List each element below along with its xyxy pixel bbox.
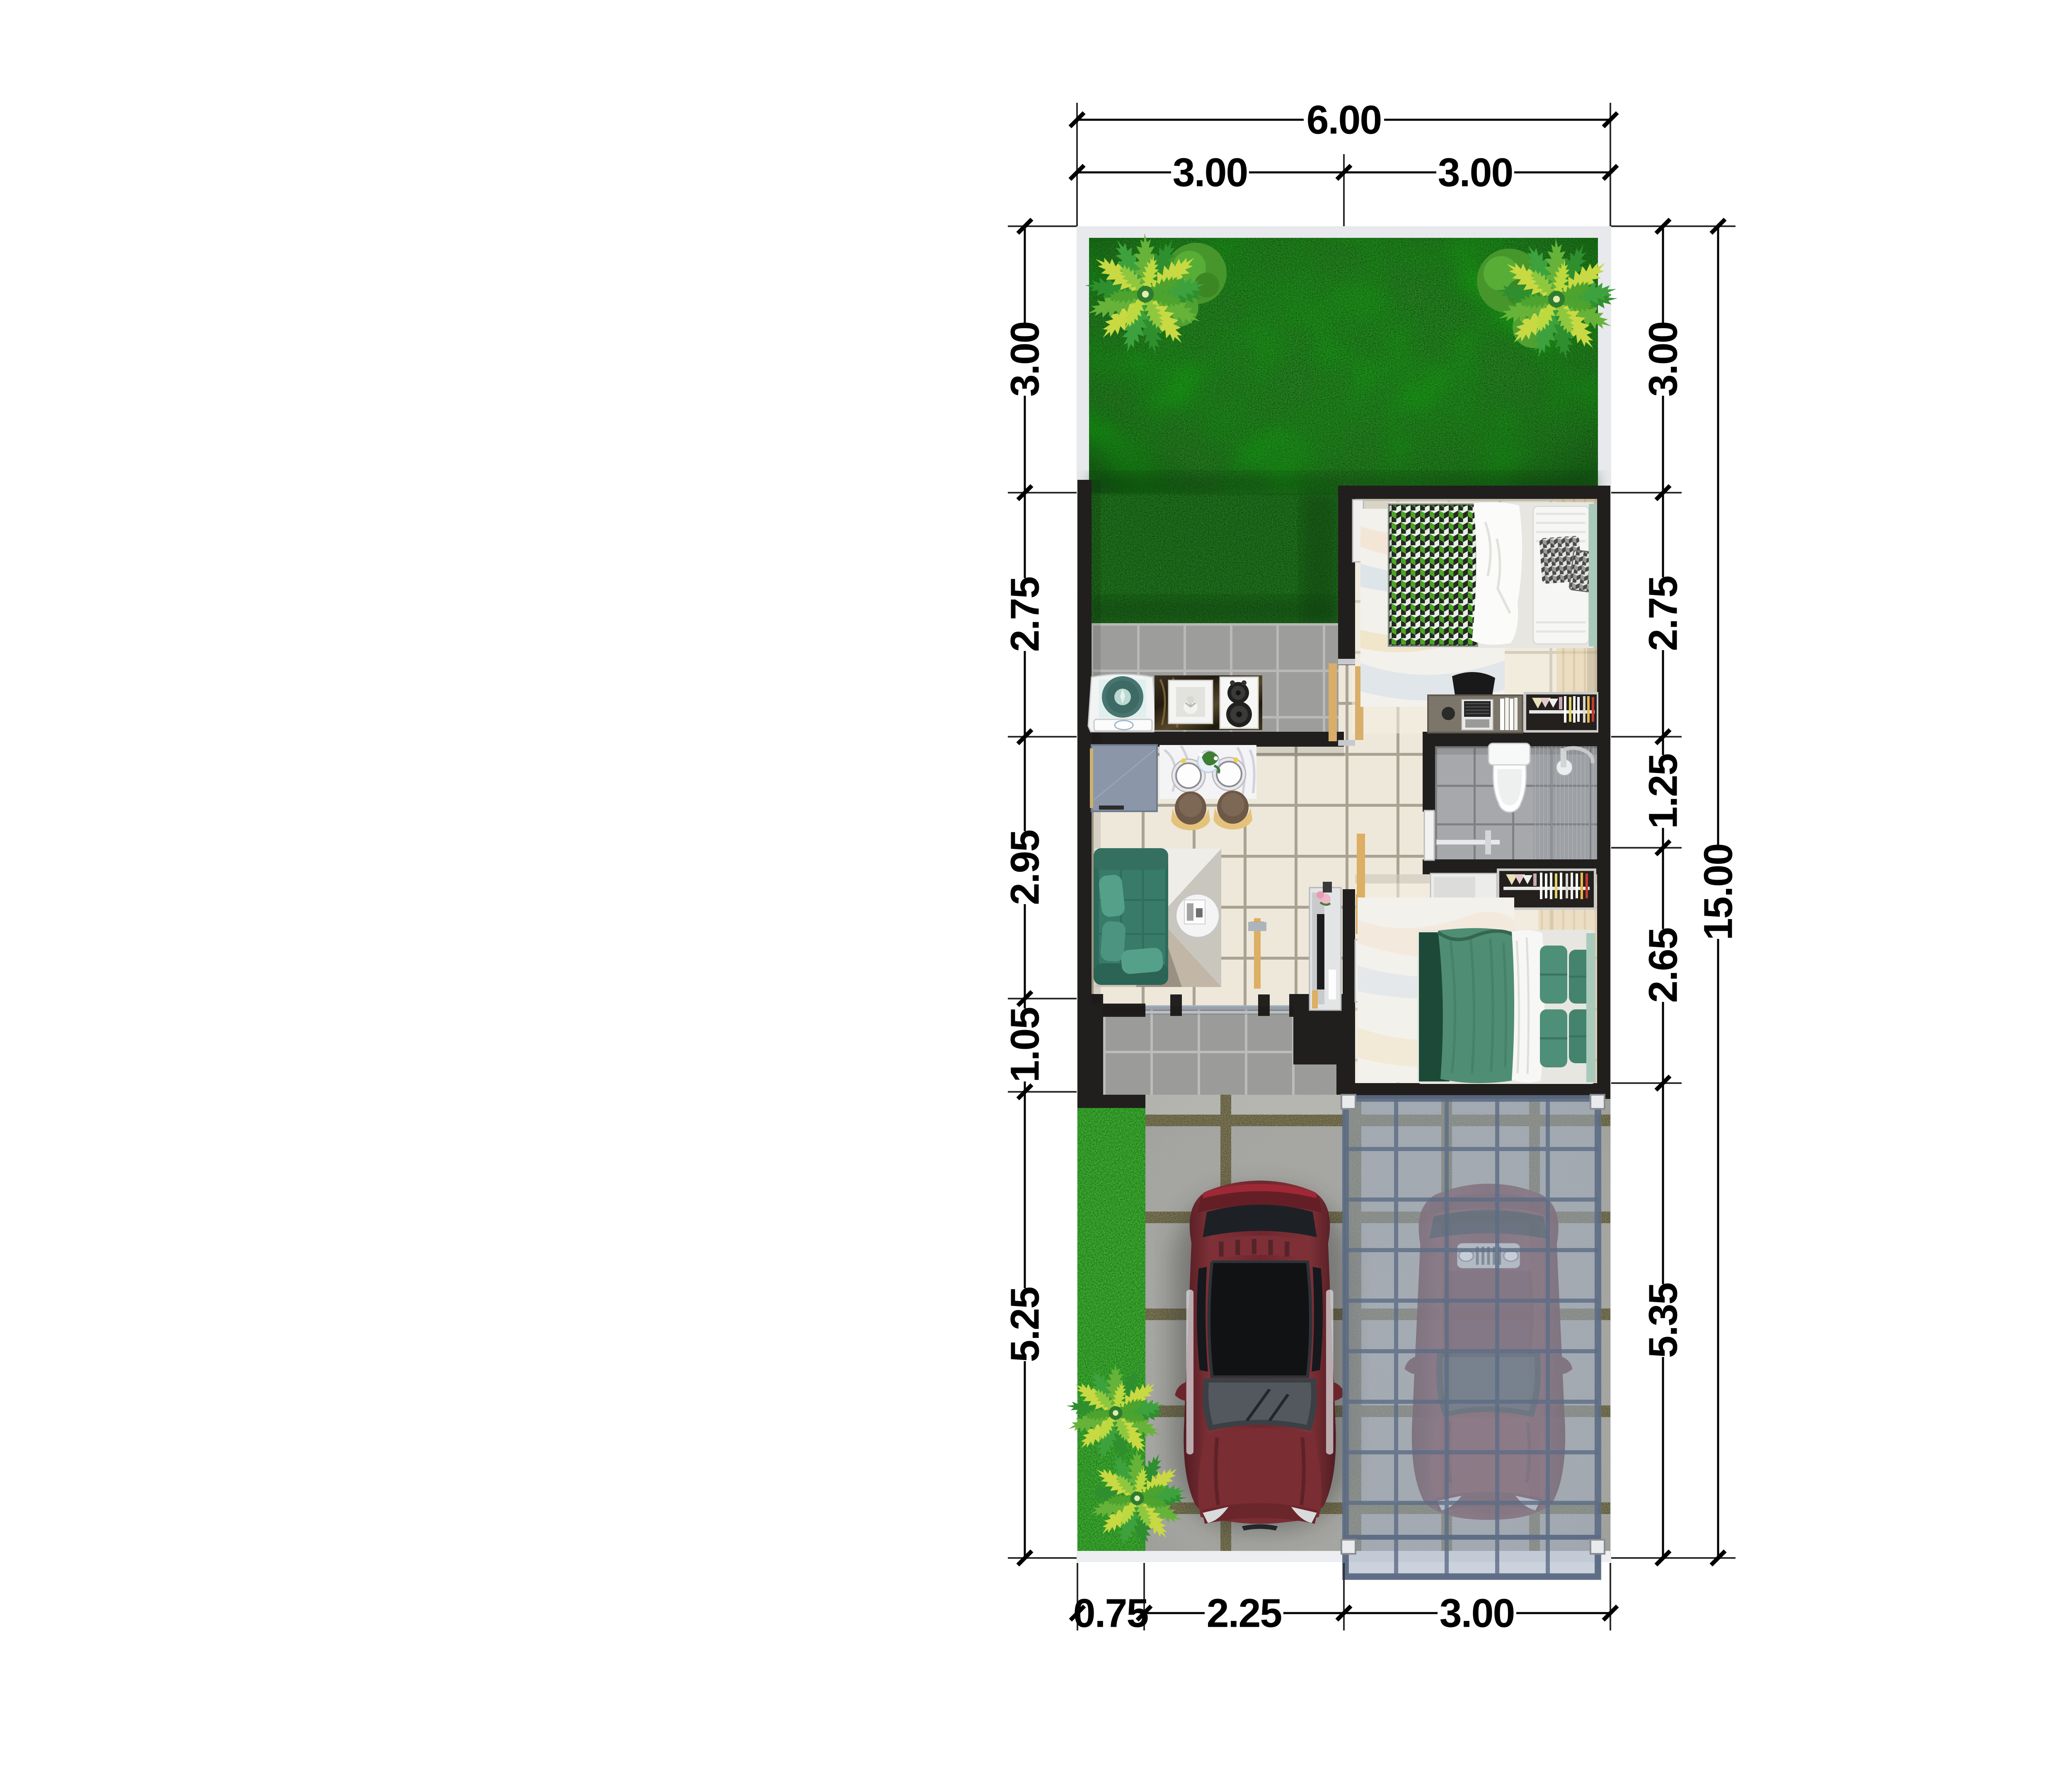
svg-text:3.00: 3.00: [1440, 1591, 1515, 1636]
svg-text:5.25: 5.25: [1002, 1287, 1048, 1362]
svg-text:3.00: 3.00: [1641, 322, 1686, 397]
svg-text:15.00: 15.00: [1696, 844, 1741, 941]
svg-text:2.65: 2.65: [1641, 928, 1686, 1003]
svg-text:1.05: 1.05: [1002, 1008, 1048, 1083]
svg-text:5.35: 5.35: [1641, 1283, 1686, 1358]
svg-text:0.75: 0.75: [1073, 1591, 1148, 1636]
svg-text:2.75: 2.75: [1641, 576, 1686, 651]
svg-text:3.00: 3.00: [1002, 322, 1048, 397]
svg-text:2.75: 2.75: [1002, 577, 1048, 652]
svg-text:2.95: 2.95: [1002, 830, 1048, 905]
svg-text:6.00: 6.00: [1307, 97, 1382, 143]
svg-text:1.25: 1.25: [1641, 754, 1686, 829]
svg-text:2.25: 2.25: [1207, 1591, 1282, 1636]
svg-text:3.00: 3.00: [1173, 150, 1248, 195]
svg-text:3.00: 3.00: [1438, 150, 1513, 195]
